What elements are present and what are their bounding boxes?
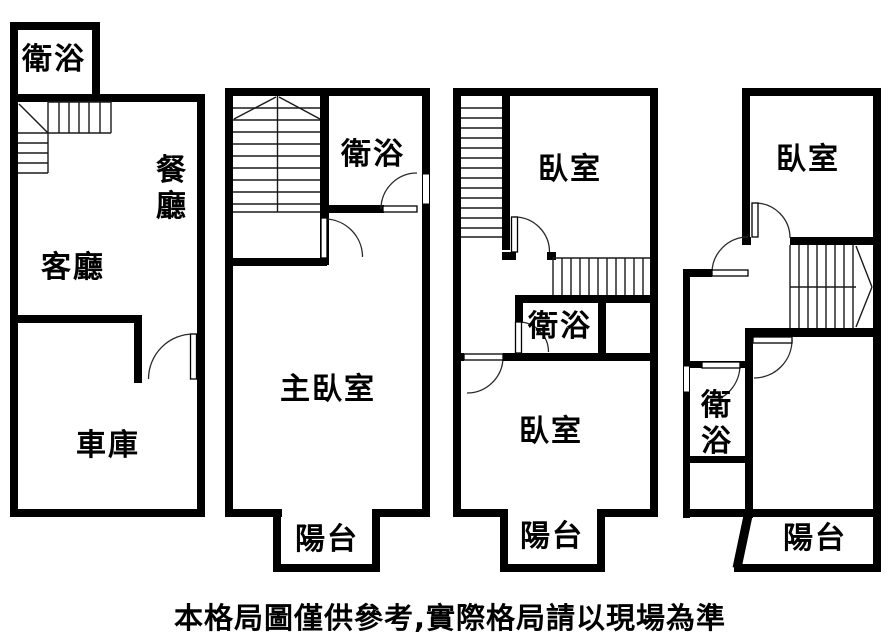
floor4-staircase — [790, 245, 872, 328]
floor4-room-door — [753, 337, 792, 378]
room-label-f3-bedroom-upper: 臥室 — [538, 153, 602, 188]
room-label-f3-bedroom-lower: 臥室 — [519, 415, 583, 450]
floor3-staircase-upper — [461, 108, 502, 237]
room-label-f3-bathroom: 衛浴 — [528, 310, 592, 345]
disclaimer-text: 本格局圖僅供參考,實際格局請以現場為準 — [174, 595, 726, 637]
room-label-f1-living: 客廳 — [41, 251, 105, 286]
room-label-f4-bedroom: 臥室 — [776, 143, 840, 178]
room-label-f3-balcony: 陽台 — [520, 520, 584, 555]
floor2-staircase — [233, 96, 320, 212]
room-label-f1-dining: 餐廳 — [153, 153, 189, 225]
floor2-hall-door — [321, 218, 363, 258]
floor2-bathroom-door — [381, 173, 417, 212]
room-label-f2-master-bedroom: 主臥室 — [280, 373, 376, 408]
room-label-f1-garage: 車庫 — [76, 429, 140, 464]
floor3-bedroom-lower-door — [464, 354, 503, 393]
floor-plan-image: 衛浴 餐廳 客廳 車庫 衛浴 主臥室 陽台 臥室 衛浴 臥室 陽台 臥室 衛浴 … — [0, 0, 889, 638]
room-label-f2-bathroom: 衛浴 — [341, 138, 405, 173]
floor1-garage-door — [149, 334, 197, 379]
floor1-staircase — [18, 102, 111, 173]
floor3-staircase-mid — [553, 258, 650, 295]
room-label-f1-bathroom: 衛浴 — [22, 43, 86, 78]
room-label-f4-balcony: 陽台 — [783, 522, 847, 557]
floor4-bedroom-door — [752, 203, 790, 238]
room-label-f2-balcony: 陽台 — [295, 523, 359, 558]
room-label-f4-bathroom: 衛浴 — [698, 388, 734, 460]
floor3-bedroom-upper-door — [512, 217, 550, 252]
floor-plan-drawing — [0, 0, 889, 638]
